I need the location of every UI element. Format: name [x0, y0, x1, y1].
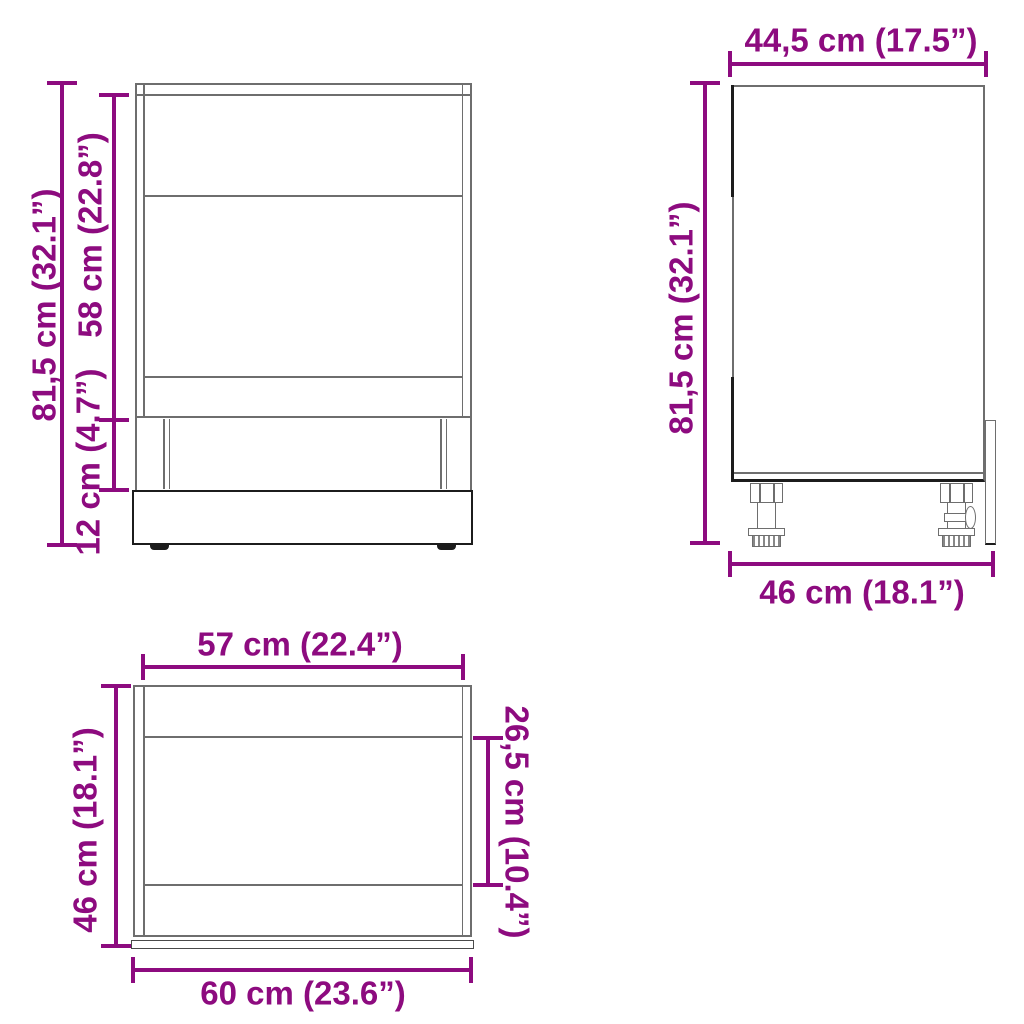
side-foot-left-top-facet-a: [759, 484, 761, 502]
side-front-edge-lower: [731, 377, 734, 482]
side-foot-left-nut: [752, 535, 781, 547]
top-door-front-band: [131, 940, 474, 949]
front-inner-dim-tick-top: [99, 93, 129, 97]
side-depth-top-dim-tick-right: [984, 51, 988, 77]
top-carcass-outline: [133, 685, 472, 937]
front-divider-line-lower: [144, 376, 462, 378]
side-depth-top-dim-line: [730, 62, 986, 66]
side-depth-bottom-label: 46 cm (18.1”): [759, 576, 964, 609]
top-depth-dim-tick-bottom: [101, 944, 131, 948]
front-carcass-outline: [135, 83, 472, 418]
side-door-strip: [985, 420, 996, 545]
top-carcass-width-label: 57 cm (22.4”): [197, 628, 402, 661]
side-total-height-dim-tick-top: [690, 81, 720, 85]
front-total-height-label: 81,5 cm (32.1”): [28, 189, 61, 422]
front-foot-left: [150, 545, 169, 550]
top-depth-label: 46 cm (18.1”): [69, 727, 102, 932]
side-front-edge-upper: [731, 85, 734, 197]
top-left-panel-line: [143, 686, 145, 936]
top-front-width-dim-line: [133, 968, 473, 972]
top-inner-line-upper: [144, 736, 462, 738]
side-foot-left-top-facet-b: [773, 484, 775, 502]
side-depth-bottom-dim-line: [730, 562, 993, 566]
side-foot-left-stem: [757, 502, 776, 529]
top-carcass-width-dim-tick-right: [461, 654, 465, 680]
front-toprail-line: [137, 94, 470, 96]
side-foot-left-top-nut: [750, 483, 783, 503]
top-right-panel-line: [462, 686, 464, 936]
top-front-width-label: 60 cm (23.6”): [200, 977, 405, 1010]
top-depth-dim-tick-top: [101, 684, 131, 688]
side-carcass-outline: [732, 85, 985, 482]
front-inner-dim-line: [112, 95, 116, 490]
side-bottom-panel-line: [733, 472, 984, 474]
front-leg-left-line-a: [163, 419, 165, 489]
top-carcass-width-dim-tick-left: [141, 654, 145, 680]
top-recess-depth-label: 26,5 cm (10.4”): [501, 706, 534, 939]
side-foot-right-top-facet-b: [963, 484, 965, 502]
side-total-height-dim-line: [703, 83, 707, 543]
front-foot-right: [437, 545, 456, 550]
side-depth-bottom-dim-tick-left: [728, 551, 732, 577]
side-foot-right-adjuster-knob: [965, 506, 976, 529]
side-total-height-dim-tick-bottom: [690, 541, 720, 545]
side-depth-top-dim-tick-left: [728, 51, 732, 77]
front-right-panel-line: [462, 84, 464, 417]
top-depth-dim-line: [114, 686, 118, 946]
top-front-width-dim-tick-right: [469, 957, 473, 983]
front-left-panel-line: [143, 84, 145, 417]
front-recess-left-edge: [135, 418, 137, 490]
dimension-diagram: 81,5 cm (32.1”) 58 cm (22.8”) 12 cm (4.7…: [0, 0, 1024, 1024]
front-plinth-height-label: 12 cm (4.7”): [72, 368, 105, 555]
front-recess-right-edge: [470, 418, 472, 490]
side-foot-right-top-facet-a: [949, 484, 951, 502]
front-divider-line-upper: [144, 195, 462, 197]
side-foot-right-nut: [942, 535, 971, 547]
top-front-width-dim-tick-left: [131, 957, 135, 983]
front-leg-right-line-b: [446, 419, 448, 489]
front-leg-right-line-a: [440, 419, 442, 489]
side-foot-right-top-nut: [940, 483, 973, 503]
side-depth-top-label: 44,5 cm (17.5”): [745, 24, 978, 57]
top-carcass-width-dim-line: [143, 665, 463, 669]
top-recess-dim-line: [486, 738, 490, 885]
top-inner-line-lower: [144, 884, 462, 886]
front-total-height-dim-tick-top: [47, 81, 77, 85]
front-plinth-outline: [132, 490, 473, 545]
front-door-height-label: 58 cm (22.8”): [74, 132, 107, 337]
front-leg-left-line-b: [169, 419, 171, 489]
side-depth-bottom-dim-tick-right: [991, 551, 995, 577]
side-total-height-label: 81,5 cm (32.1”): [665, 202, 698, 435]
